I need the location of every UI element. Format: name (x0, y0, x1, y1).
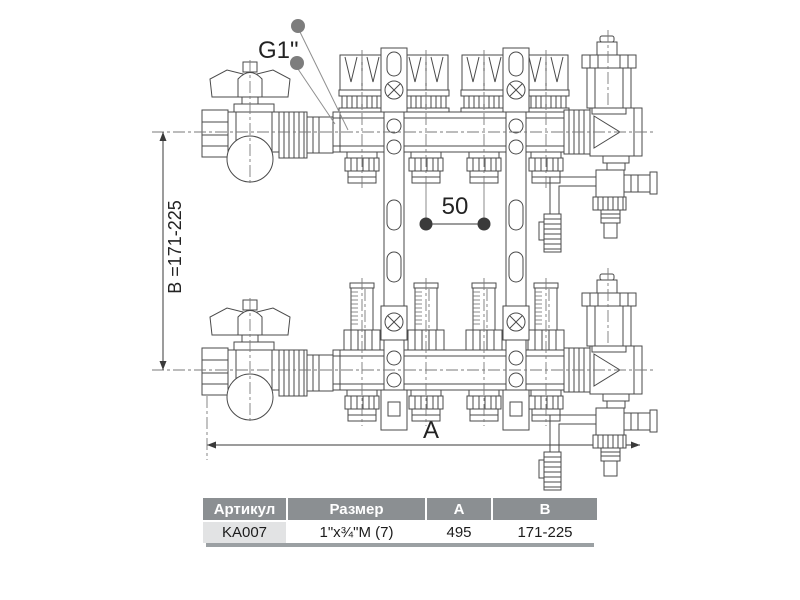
mounting-bracket-left (381, 48, 407, 430)
callout-dot (291, 19, 305, 33)
cell-article: KA007 (203, 520, 288, 543)
header-dim-b: B (493, 498, 597, 520)
spec-table: Артикул Размер A B KA007 1"x¾"M (7) 495 … (203, 498, 597, 547)
thread-size-label: G1" (258, 37, 299, 64)
air-vent-bottom (582, 274, 636, 352)
header-dim-a: A (427, 498, 493, 520)
dimension-outlet-spacing: 50 (420, 188, 491, 231)
ball-valve-bottom (202, 300, 333, 420)
dimension-50-label: 50 (442, 193, 469, 220)
dimension-dot (420, 218, 433, 231)
table-shadow (206, 543, 594, 547)
spec-table-header-row: Артикул Размер A B (203, 498, 597, 520)
mounting-bracket-right (503, 48, 529, 430)
ball-valve-top (202, 62, 333, 182)
cell-size: 1"x¾"M (7) (288, 520, 427, 543)
dimension-b-label: B =171-225 (165, 200, 185, 294)
spec-table-data-row: KA007 1"x¾"M (7) 495 171-225 (203, 520, 597, 543)
header-size: Размер (288, 498, 427, 520)
dimension-dot (478, 218, 491, 231)
dimension-b: B =171-225 (160, 132, 186, 370)
header-article: Артикул (203, 498, 288, 520)
air-vent-top (582, 36, 636, 114)
cell-dim-a: 495 (427, 520, 493, 543)
cell-dim-b: 171-225 (493, 520, 597, 543)
dimension-a-label: A (423, 417, 439, 444)
manifold-datasheet-page: B =171-225 50 G1" A Артикул Размер A B (0, 0, 800, 600)
bottom-manifold-assembly (202, 274, 657, 490)
